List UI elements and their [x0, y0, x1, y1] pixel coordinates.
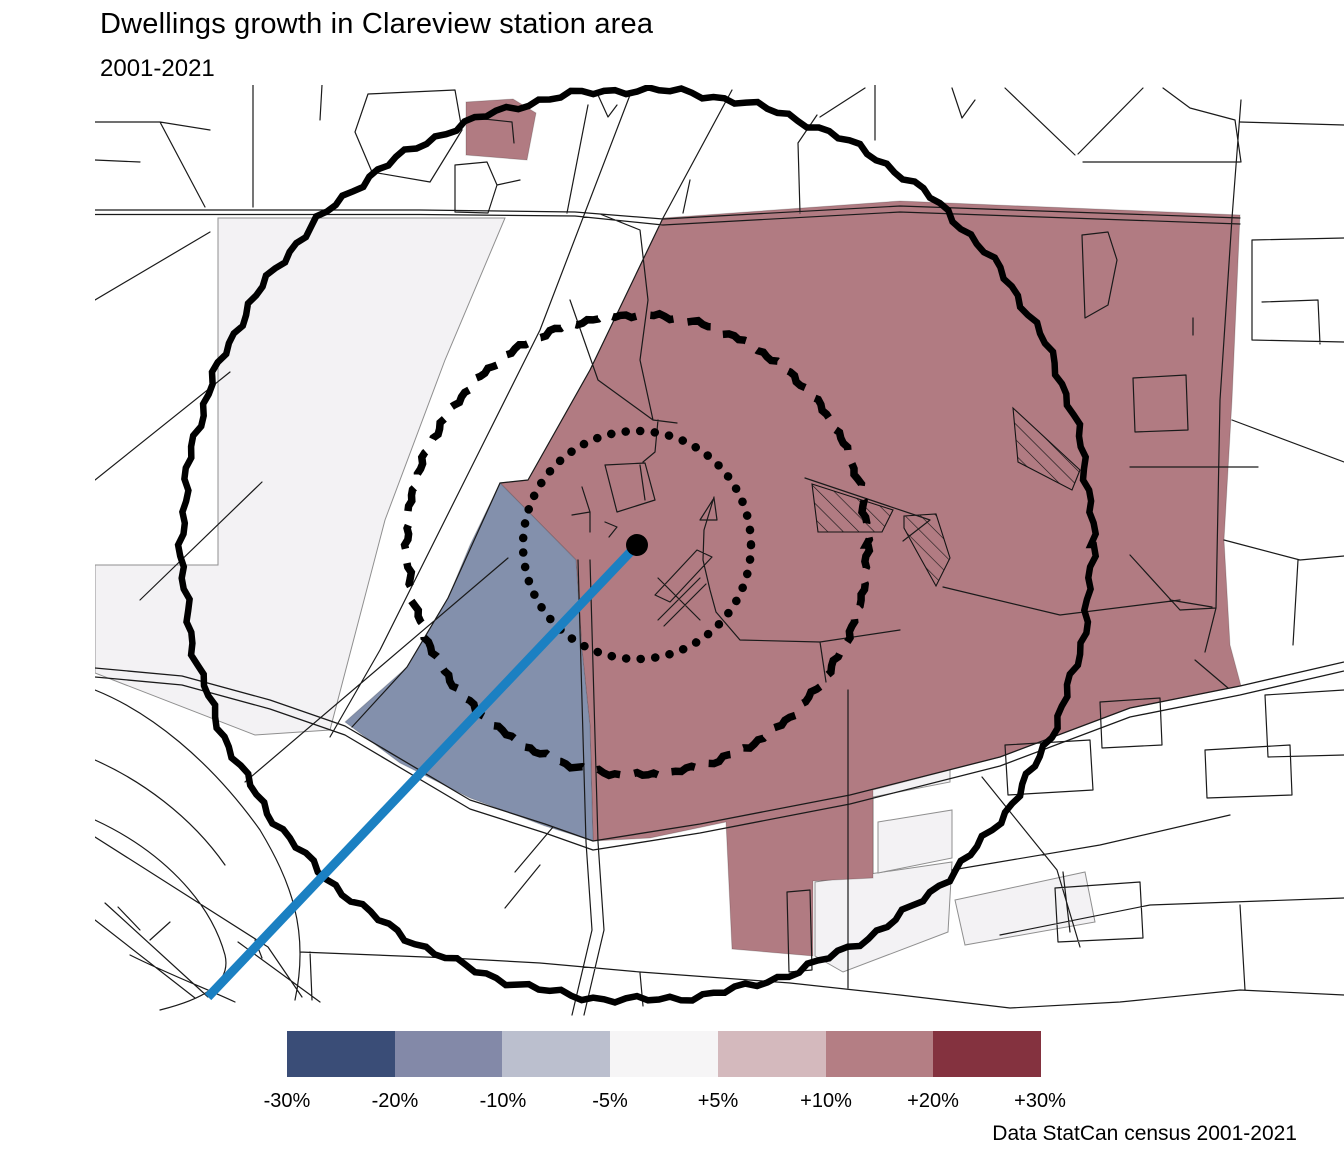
- legend-label: +10%: [781, 1090, 871, 1113]
- color-legend: [287, 1031, 1041, 1077]
- attribution: Data StatCan census 2001-2021: [992, 1122, 1297, 1146]
- legend-swatch: [718, 1031, 826, 1077]
- legend-swatch: [826, 1031, 934, 1077]
- legend-swatch: [502, 1031, 610, 1077]
- map-canvas: [0, 0, 1344, 1152]
- station-dot: [626, 534, 648, 556]
- legend-swatch: [395, 1031, 503, 1077]
- legend-swatch: [933, 1031, 1041, 1077]
- page-subtitle: 2001-2021: [100, 55, 215, 83]
- legend-label: -10%: [458, 1090, 548, 1113]
- legend-label: -5%: [565, 1090, 655, 1113]
- legend-swatch: [610, 1031, 718, 1077]
- legend-label: -20%: [350, 1090, 440, 1113]
- legend-label: +5%: [673, 1090, 763, 1113]
- legend-label: +20%: [888, 1090, 978, 1113]
- legend-label: +30%: [995, 1090, 1085, 1113]
- legend-label: -30%: [242, 1090, 332, 1113]
- legend-swatch: [287, 1031, 395, 1077]
- map-figure: Dwellings growth in Clareview station ar…: [0, 0, 1344, 1152]
- page-title: Dwellings growth in Clareview station ar…: [100, 8, 653, 41]
